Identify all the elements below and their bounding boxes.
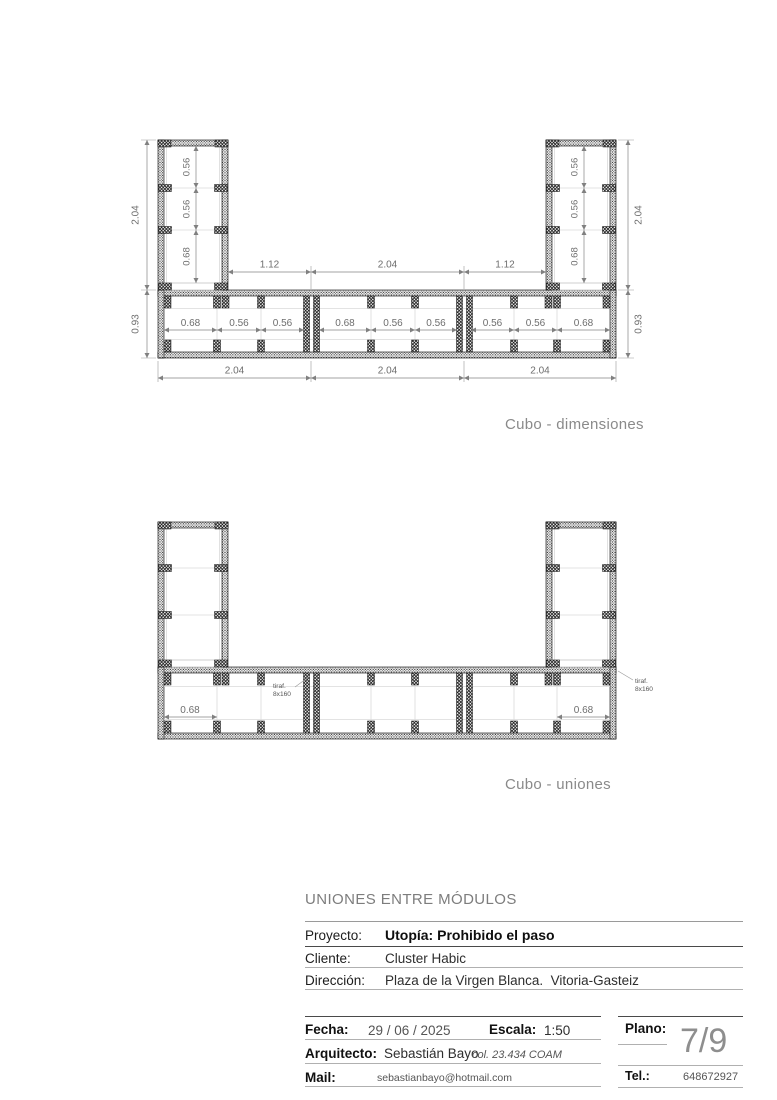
dim-span-1: 1.12 <box>260 260 280 271</box>
plano-label: Plano: <box>625 1021 666 1036</box>
rule <box>618 1087 743 1088</box>
rule <box>618 1016 743 1017</box>
escala-value: 1:50 <box>544 1023 570 1038</box>
plano-number: 7/9 <box>680 1024 727 1058</box>
drawing-cubo-uniones: 0.68 0.68 tiraf. 8x160 tiraf. 8x160 <box>128 510 728 750</box>
arquitecto-label: Arquitecto: <box>305 1046 377 1061</box>
dim-m1-bay1: 0.68 <box>181 318 201 329</box>
dim-span-2: 2.04 <box>378 260 398 271</box>
rule <box>305 946 743 947</box>
fastener-note-left-line2: 8x160 <box>273 691 291 698</box>
cliente-value: Cluster Habic <box>385 951 466 966</box>
tel-label: Tel.: <box>625 1069 650 1083</box>
dim-m1-bay2: 0.56 <box>229 318 249 329</box>
dim-bottom-1: 2.04 <box>225 366 245 377</box>
dim-left-tower-height: 2.04 <box>131 205 142 225</box>
right-tower <box>546 522 616 667</box>
mail-label: Mail: <box>305 1070 336 1085</box>
caption-drawing1: Cubo - dimensiones <box>505 416 644 433</box>
dim-m3-bay2: 0.56 <box>526 318 546 329</box>
fastener-note-left-line1: tiraf. <box>273 683 286 690</box>
annotations: 0.68 0.68 tiraf. 8x160 tiraf. 8x160 <box>164 671 653 717</box>
rule <box>305 989 743 990</box>
left-tower <box>158 140 228 290</box>
dim-span-3: 1.12 <box>495 260 515 271</box>
rule <box>305 1039 601 1040</box>
dim-m2-bay1: 0.68 <box>335 318 355 329</box>
fastener-note-right-line1: tiraf. <box>635 678 648 685</box>
rule <box>618 1044 667 1045</box>
dim-right-tower-bay-3: 0.68 <box>570 247 581 266</box>
base-bar <box>158 667 616 739</box>
tel-value: 648672927 <box>683 1071 738 1083</box>
right-tower <box>546 140 616 290</box>
cliente-label: Cliente: <box>305 951 351 966</box>
dim-left-bay: 0.68 <box>180 705 200 716</box>
dim-right-bay: 0.68 <box>574 705 594 716</box>
dim-bottom-3: 2.04 <box>530 366 550 377</box>
rule <box>305 1016 601 1017</box>
rule <box>305 1086 601 1087</box>
arquitecto-value: Sebastián Bayo <box>384 1046 479 1061</box>
dim-left-tower-bay-3: 0.68 <box>182 247 193 266</box>
escala-label: Escala: <box>489 1022 536 1037</box>
dim-bottom-2: 2.04 <box>378 366 398 377</box>
fecha-value: 29 / 06 / 2025 <box>368 1023 451 1038</box>
dim-m3-bay3: 0.68 <box>574 318 594 329</box>
proyecto-value: Utopía: Prohibido el paso <box>385 927 555 943</box>
dim-right-bar-height: 0.93 <box>634 314 645 334</box>
fastener-note-right-line2: 8x160 <box>635 686 653 693</box>
direccion-value: Plaza de la Virgen Blanca. Vitoria-Gaste… <box>385 973 639 988</box>
arquitecto-credential: col. 23.434 COAM <box>472 1049 562 1061</box>
drawing-cubo-dimensiones: 2.04 0.93 2.04 0.93 0.56 0.56 0.68 0.56 … <box>128 133 658 385</box>
proyecto-label: Proyecto: <box>305 928 362 943</box>
sheet: 2.04 0.93 2.04 0.93 0.56 0.56 0.68 0.56 … <box>0 0 777 1100</box>
dim-m1-bay3: 0.56 <box>273 318 293 329</box>
rule <box>305 967 743 968</box>
caption-drawing2: Cubo - uniones <box>505 776 611 793</box>
dim-left-tower-bay-2: 0.56 <box>182 200 193 219</box>
dim-right-tower-height: 2.04 <box>634 205 645 225</box>
rule <box>305 1063 601 1064</box>
rule <box>618 1065 743 1066</box>
rule <box>305 921 743 922</box>
dim-m2-bay3: 0.56 <box>426 318 446 329</box>
dim-m2-bay2: 0.56 <box>383 318 403 329</box>
fecha-label: Fecha: <box>305 1022 349 1037</box>
dim-m3-bay1: 0.56 <box>483 318 503 329</box>
sheet-section-title: UNIONES ENTRE MÓDULOS <box>305 891 517 908</box>
dimensions: 2.04 0.93 2.04 0.93 0.56 0.56 0.68 0.56 … <box>131 140 645 382</box>
dim-right-tower-bay-2: 0.56 <box>570 200 581 219</box>
dim-left-tower-bay-1: 0.56 <box>182 158 193 177</box>
left-tower <box>158 522 228 667</box>
direccion-label: Dirección: <box>305 973 365 988</box>
dim-right-tower-bay-1: 0.56 <box>570 158 581 177</box>
mail-value: sebastianbayo@hotmail.com <box>377 1072 512 1084</box>
dim-left-bar-height: 0.93 <box>131 314 142 334</box>
